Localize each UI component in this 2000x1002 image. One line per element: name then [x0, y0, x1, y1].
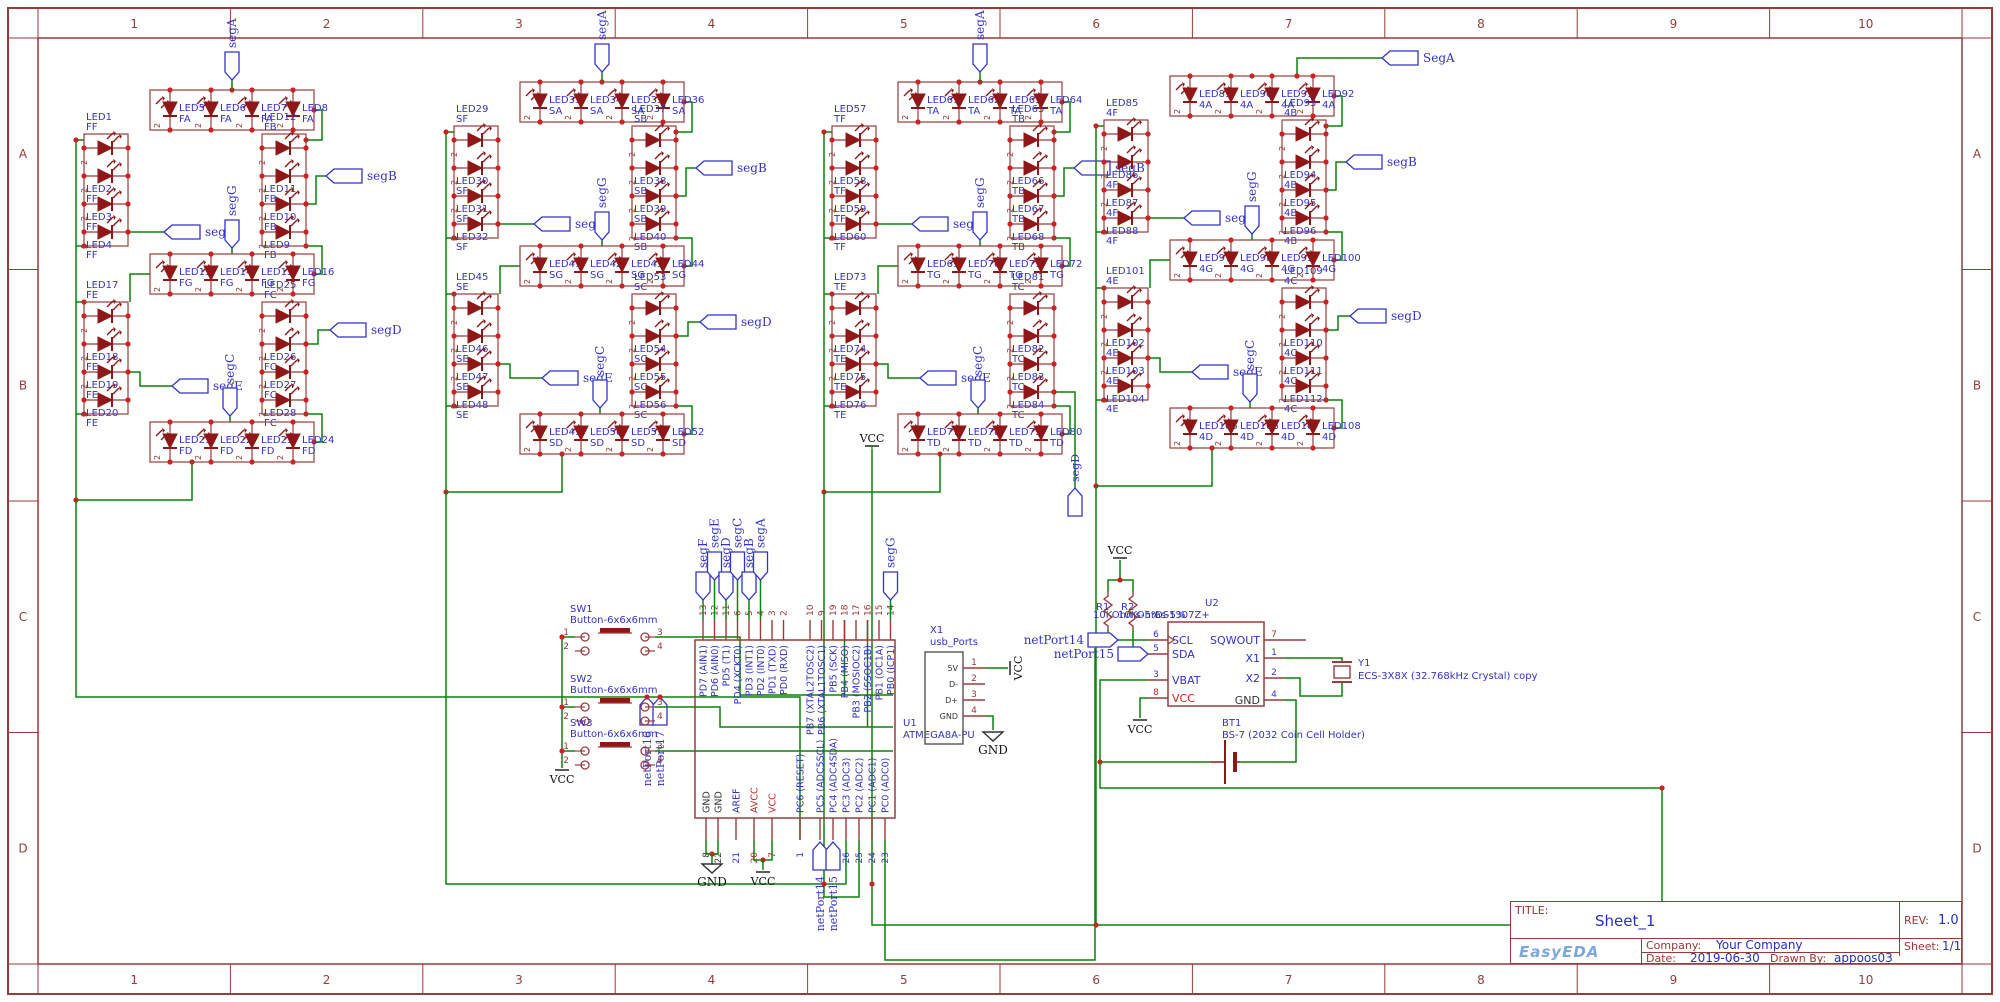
junction-dot: [125, 369, 130, 374]
junction-dot: [1145, 187, 1150, 192]
net-flag-segD[interactable]: segD: [330, 323, 402, 337]
led-tag: 4C: [1284, 348, 1297, 359]
mcu-pin-name: VCC: [768, 793, 779, 813]
wire[interactable]: [878, 266, 898, 294]
net-label[interactable]: segD: [1069, 454, 1082, 482]
button-pin-number: 4: [657, 756, 663, 766]
segment-D-group[interactable]: 2LED21FD2LED22FD2LED23FD2LED24FD: [150, 419, 334, 464]
led-tag: TA: [1049, 106, 1062, 117]
button-ref: SW2: [570, 674, 593, 685]
wire[interactable]: [1284, 678, 1342, 696]
junction-dot: [1323, 327, 1328, 332]
junction-dot: [997, 451, 1002, 456]
led-LED81[interactable]: 2LED81TC: [1006, 272, 1057, 325]
net-label[interactable]: segC: [1243, 340, 1257, 370]
junction-dot: [673, 137, 678, 142]
segment-G-group[interactable]: 2LED13FG2LED14FG2LED15FG2LED16FG: [150, 251, 334, 296]
junction-dot: [249, 251, 254, 256]
led-tag: FF: [86, 122, 98, 133]
wire[interactable]: [1100, 680, 1148, 762]
net-label[interactable]: segC: [223, 354, 237, 384]
segment-E-group[interactable]: 2LED73TE2LED74TE2LED75TE2LED76TE: [828, 272, 879, 421]
net-flag-segC[interactable]: segC: [971, 346, 985, 408]
junction-dot: [1051, 305, 1056, 310]
led-LED93[interactable]: 2LED934B: [1278, 98, 1329, 151]
segment-C-group[interactable]: 2LED53SC2LED54SC2LED55SC2LED56SC: [628, 272, 679, 421]
wire[interactable]: [876, 364, 920, 378]
junction-dot: [1228, 113, 1233, 118]
led-tag: 4B: [1284, 236, 1297, 247]
junction-dot: [873, 305, 878, 310]
net-label[interactable]: segD: [371, 323, 402, 337]
net-label[interactable]: netPort14: [1024, 633, 1085, 647]
net-label[interactable]: segG: [225, 185, 239, 216]
easyeda-logo: EasyEDA: [1519, 943, 1599, 961]
led-tag: FD: [220, 446, 234, 457]
net-label[interactable]: segA: [225, 18, 239, 48]
net-flag-segC[interactable]: segC: [593, 346, 607, 408]
vcc-power-symbol[interactable]: VCC: [549, 770, 575, 786]
junction-dot: [619, 411, 624, 416]
wire[interactable]: [306, 330, 330, 344]
net-flag-netPort14[interactable]: netPort14: [1024, 633, 1118, 647]
junction-dot: [495, 221, 500, 226]
vcc-label: VCC: [1012, 656, 1025, 682]
wire[interactable]: [498, 364, 542, 378]
junction-dot: [821, 129, 826, 134]
net-label[interactable]: netPort15: [827, 876, 840, 931]
led-pin-number: 2: [628, 152, 637, 157]
sheet-title[interactable]: Sheet_1: [1595, 912, 1655, 930]
led-tag: 4B: [1284, 108, 1297, 119]
junction-dot: [1145, 383, 1150, 388]
button-value: Button-6x6x6mm: [570, 615, 658, 626]
led-tag: TF: [833, 186, 846, 197]
led-LED12[interactable]: 2LED12FB: [258, 112, 309, 165]
led-tag: SA: [590, 106, 604, 117]
junction-dot: [660, 411, 665, 416]
net-flag-netPort15[interactable]: netPort15: [1054, 647, 1148, 661]
frame-column-label: 5: [900, 973, 908, 987]
junction-dot: [537, 451, 542, 456]
segment-G-group[interactable]: 2LED974G2LED984G2LED994G2LED1004G: [1170, 237, 1361, 282]
title-label: TITLE:: [1515, 904, 1548, 917]
net-label[interactable]: segA: [754, 518, 768, 548]
mcu-pin-number: 17: [852, 605, 862, 616]
segment-C-group[interactable]: 2LED81TC2LED82TC2LED83TC2LED84TC: [1006, 272, 1057, 421]
junction-dot: [619, 243, 624, 248]
crystal-y1[interactable]: Y1ECS-3X8X (32.768kHz Crystal) copy: [1284, 658, 1538, 696]
junction-dot: [660, 243, 665, 248]
net-label[interactable]: segG: [973, 177, 987, 208]
wire[interactable]: [676, 322, 700, 336]
led-tag: SD: [590, 438, 604, 449]
led-tag: TB: [1011, 186, 1025, 197]
junction-dot: [829, 221, 834, 226]
junction-dot: [915, 451, 920, 456]
crystal-value: ECS-3X8X (32.768kHz Crystal) copy: [1358, 671, 1538, 682]
segment-F-group[interactable]: 2LED1FF2LED2FF2LED3FF2LED4FF: [80, 112, 131, 261]
led-tag: TF: [833, 242, 846, 253]
button-pin-number: 4: [657, 712, 663, 722]
net-flag-segG[interactable]: segG: [884, 537, 898, 600]
net-flag-netPort14[interactable]: netPort14: [813, 842, 827, 931]
led-LED109[interactable]: 2LED1094C: [1278, 266, 1329, 319]
segment-A-group[interactable]: 2LED5FA2LED6FA2LED7FA2LED8FA: [150, 87, 328, 132]
led-LED57[interactable]: 2LED57TF: [828, 104, 879, 157]
segment-C-group[interactable]: 2LED25FC2LED26FC2LED27FC2LED28FC: [258, 280, 309, 429]
led-tag: 4B: [1284, 208, 1297, 219]
wire[interactable]: [1148, 358, 1192, 372]
net-flag-segF[interactable]: segF: [534, 217, 604, 231]
wire[interactable]: [76, 500, 800, 840]
led-tag: FE: [86, 390, 98, 401]
wire[interactable]: [1150, 260, 1170, 288]
led-ref: LED8: [302, 103, 328, 114]
wire[interactable]: [1326, 162, 1346, 190]
led-pin-number: 2: [1255, 441, 1264, 446]
vcc-power-symbol[interactable]: VCC: [1010, 656, 1025, 682]
frame-column-label: 10: [1858, 17, 1873, 31]
led-LED85[interactable]: 2LED854F: [1100, 98, 1151, 151]
junction-dot: [259, 341, 264, 346]
led-pin-number: 2: [1255, 273, 1264, 278]
led-pin-number: 2: [235, 455, 244, 460]
rtc-pin-name: SCL: [1172, 634, 1194, 647]
wire[interactable]: [1140, 698, 1148, 718]
led-tag: TB: [1011, 214, 1025, 225]
led-pin-number: 2: [828, 152, 837, 157]
led-tag: SB: [634, 242, 647, 253]
junction-dot: [629, 137, 634, 142]
junction-dot: [1294, 73, 1299, 78]
rtc-u2[interactable]: U210KOhms-5%10KOhms-5%DS1307Z+6SCL5SDA3V…: [1024, 544, 1665, 791]
vcc-power-symbol[interactable]: VCC: [750, 872, 776, 888]
date-value[interactable]: 2019-06-30: [1690, 951, 1760, 965]
mcu-pin-number: 9: [818, 610, 828, 616]
junction-dot: [125, 201, 130, 206]
junction-dot: [1051, 137, 1056, 142]
sheet-value[interactable]: 1/1: [1942, 939, 1961, 953]
net-flag-segG[interactable]: segG: [225, 185, 239, 248]
junction-dot: [660, 451, 665, 456]
net-label[interactable]: segA: [973, 10, 987, 40]
junction-dot: [208, 419, 213, 424]
seven-seg-digit-1[interactable]: 2LED5FA2LED6FA2LED7FA2LED8FA2LED1FF2LED2…: [73, 18, 401, 503]
gnd-power-symbol[interactable]: GND: [978, 732, 1008, 757]
wire[interactable]: [306, 176, 326, 204]
crystal-ref: Y1: [1357, 658, 1370, 669]
junction-dot: [249, 87, 254, 92]
company-value[interactable]: Your Company: [1716, 938, 1803, 952]
net-flag-segG[interactable]: segG: [595, 177, 609, 240]
led-pin-number: 2: [1296, 441, 1305, 446]
led-LED45[interactable]: 2LED45SE: [450, 272, 501, 325]
junction-dot: [451, 221, 456, 226]
junction-dot: [997, 283, 1002, 288]
net-label[interactable]: segD: [1391, 309, 1422, 323]
segment-B-group[interactable]: 2LED934B2LED944B2LED954B2LED964B: [1278, 98, 1329, 247]
led-pin-number: 2: [153, 123, 162, 128]
junction-dot: [81, 341, 86, 346]
segment-B-group[interactable]: 2LED65TB2LED66TB2LED67TB2LED68TB: [1006, 104, 1057, 253]
button-pin-number: 2: [563, 756, 569, 766]
junction-dot: [956, 119, 961, 124]
net-label[interactable]: segG: [884, 537, 898, 568]
junction-dot: [1310, 73, 1315, 78]
led-tag: TA: [967, 106, 980, 117]
junction-dot: [1101, 131, 1106, 136]
net-label[interactable]: segG: [595, 177, 609, 208]
junction-dot: [956, 79, 961, 84]
wire[interactable]: [1054, 168, 1074, 196]
rev-value[interactable]: 1.0: [1938, 913, 1959, 928]
mcu-pin-number: 21: [732, 852, 742, 863]
junction-dot: [1228, 237, 1233, 242]
junction-dot: [290, 419, 295, 424]
net-flag-SegA[interactable]: SegA: [1382, 51, 1455, 65]
button-value: Button-6x6x6mm: [570, 729, 658, 740]
led-pin-number: 2: [1278, 146, 1287, 151]
frame-column-label: 8: [1477, 17, 1485, 31]
led-pin-number: 2: [564, 279, 573, 284]
wire[interactable]: [500, 266, 520, 294]
led-tag: SB: [634, 186, 647, 197]
net-label[interactable]: SegA: [1423, 51, 1455, 65]
led-LED53[interactable]: 2LED53SC: [628, 272, 679, 325]
segment-D-group[interactable]: 2LED49SD2LED50SD2LED51SD2LED52SD: [520, 411, 704, 456]
net-label[interactable]: segB: [1387, 155, 1417, 169]
segment-A-group[interactable]: 2LED894A2LED904A2LED914A2LED924A: [1170, 73, 1354, 118]
segment-F-group[interactable]: 2LED29SF2LED30SF2LED31SF2LED32SF: [450, 104, 501, 253]
led-tag: SD: [672, 438, 686, 449]
net-flag-segF[interactable]: segF: [1184, 211, 1254, 225]
sheet-label: Sheet:: [1904, 940, 1940, 953]
junction-dot: [1310, 445, 1315, 450]
junction-dot: [629, 389, 634, 394]
junction-dot: [1659, 785, 1664, 790]
led-tag: 4A: [1240, 100, 1253, 111]
rtc-pin-name: SDA: [1172, 648, 1195, 661]
junction-dot: [578, 411, 583, 416]
wire[interactable]: [1100, 762, 1662, 788]
segment-F-group[interactable]: 2LED57TF2LED58TF2LED59TF2LED60TF: [828, 104, 879, 253]
net-label[interactable]: segD: [741, 315, 772, 329]
mcu-pin-number: 18: [841, 604, 851, 616]
junction-dot: [451, 305, 456, 310]
battery-bt1[interactable]: BT1BS-7 (2032 Coin Cell Holder): [1210, 718, 1365, 784]
net-flag-segD[interactable]: segD: [700, 315, 772, 329]
frame-column-label: 2: [323, 17, 331, 31]
net-flag-segF[interactable]: segF: [912, 217, 982, 231]
junction-dot: [1101, 383, 1106, 388]
gnd-label: GND: [697, 875, 727, 889]
junction-dot: [956, 243, 961, 248]
segment-C-group[interactable]: 2LED1094C2LED1104C2LED1114C2LED1124C: [1278, 266, 1329, 415]
segment-E-group[interactable]: 2LED1014E2LED1024E2LED1034E2LED1044E: [1100, 266, 1151, 415]
wire[interactable]: [1297, 58, 1382, 76]
led-tag: SF: [456, 186, 468, 197]
seven-seg-digit-4[interactable]: 2LED894A2LED904A2LED914A2LED924A2LED854F…: [1093, 51, 1455, 489]
net-flag-segD[interactable]: segD: [1350, 309, 1422, 323]
junction-dot: [829, 361, 834, 366]
net-label[interactable]: segG: [1245, 171, 1259, 202]
junction-dot: [259, 145, 264, 150]
led-tag: SD: [631, 438, 645, 449]
wire[interactable]: [676, 168, 696, 196]
mcu-u1[interactable]: U1ATMEGA8A-PU13PD7 (AIN1)12PD6 (AIN0)11P…: [695, 518, 975, 931]
net-flag-segA[interactable]: segA: [973, 10, 987, 72]
led-pin-number: 2: [828, 320, 837, 325]
mcu-pin-name: PC6 (RESET): [796, 754, 807, 813]
led-LED25[interactable]: 2LED25FC: [258, 280, 309, 333]
junction-dot: [1051, 361, 1056, 366]
wire[interactable]: [985, 716, 993, 730]
junction-dot: [578, 283, 583, 288]
rtc-pin-name: X2: [1245, 672, 1260, 685]
led-tag: SF: [456, 214, 468, 225]
net-label[interactable]: segB: [737, 161, 767, 175]
net-flag-segA[interactable]: segA: [225, 18, 239, 80]
mcu-pin-name: PB3 (MOSIOC2): [852, 645, 863, 718]
frame-row-label: A: [1973, 147, 1982, 161]
led-pin-number: 2: [1173, 109, 1182, 114]
schematic-sheet: 1122334455667788991010AABBCCDD2LED5FA2LE…: [0, 0, 2000, 1002]
net-label[interactable]: segC: [971, 346, 985, 376]
led-tag: TC: [1011, 354, 1025, 365]
segment-A-group[interactable]: 2LED61TA2LED62TA2LED63TA2LED64TA: [898, 79, 1082, 124]
led-pin-number: 2: [1006, 152, 1015, 157]
net-label[interactable]: netPort14: [814, 876, 827, 931]
junction-dot: [125, 173, 130, 178]
led-tag: FC: [264, 418, 277, 429]
net-flag-segC[interactable]: segC: [223, 354, 237, 416]
led-pin-number: 2: [942, 115, 951, 120]
net-flag-segF[interactable]: segF: [164, 225, 234, 239]
vcc-power-symbol[interactable]: VCC: [859, 432, 885, 446]
net-flag-netPort15[interactable]: netPort15: [826, 842, 840, 931]
junction-dot: [1038, 451, 1043, 456]
led-tag: SE: [456, 410, 469, 421]
led-LED29[interactable]: 2LED29SF: [450, 104, 501, 157]
wire[interactable]: [872, 450, 1662, 925]
junction-dot: [673, 361, 678, 366]
mcu-pin-number: 7: [768, 852, 778, 858]
junction-dot: [915, 79, 920, 84]
wire[interactable]: [130, 274, 150, 302]
segment-A-group[interactable]: 2LED33SA2LED34SA2LED35SA2LED36SA: [520, 79, 704, 124]
segment-G-group[interactable]: 2LED69TG2LED70TG2LED71TG2LED72TG: [898, 243, 1082, 288]
junction-dot: [167, 87, 172, 92]
led-LED101[interactable]: 2LED1014E: [1100, 266, 1151, 319]
seven-seg-digit-2[interactable]: 2LED33SA2LED34SA2LED35SA2LED36SA2LED29SF…: [443, 10, 771, 495]
led-pin-number: 2: [646, 115, 655, 120]
junction-dot: [1323, 215, 1328, 220]
vcc-power-symbol[interactable]: VCC: [1107, 544, 1133, 558]
led-LED37[interactable]: 2LED37SB: [628, 104, 679, 157]
rtc-pin-number: 6: [1153, 630, 1159, 640]
frame-column-label: 4: [708, 17, 716, 31]
mcu-pin-number: 19: [829, 604, 839, 616]
segment-E-group[interactable]: 2LED45SE2LED46SE2LED47SE2LED48SE: [450, 272, 501, 421]
net-label[interactable]: segA: [595, 10, 609, 40]
mcu-pin-name: PD7 (AIN1): [699, 645, 710, 697]
wire[interactable]: [885, 648, 1095, 960]
led-tag: FB: [264, 222, 277, 233]
junction-dot: [1093, 123, 1098, 128]
wire[interactable]: [128, 372, 172, 386]
frame-row-label: D: [1972, 841, 1981, 855]
button-SW1[interactable]: SW1Button-6x6x6mm1234: [559, 604, 663, 655]
net-flag-segB[interactable]: segB: [1346, 155, 1417, 169]
led-pin-number: 2: [258, 160, 267, 165]
rtc-pin-number: 2: [1271, 668, 1277, 678]
junction-dot: [1279, 187, 1284, 192]
led-tag: SF: [456, 114, 468, 125]
wire[interactable]: [1326, 316, 1350, 330]
junction-dot: [1101, 355, 1106, 360]
drawn-by-value[interactable]: appoos03: [1834, 951, 1893, 965]
schematic-canvas[interactable]: 1122334455667788991010AABBCCDD2LED5FA2LE…: [0, 0, 2000, 1002]
led-tag: FG: [179, 278, 193, 289]
frame-column-label: 1: [130, 17, 138, 31]
junction-dot: [537, 119, 542, 124]
junction-dot: [208, 251, 213, 256]
junction-dot: [1269, 445, 1274, 450]
net-flag-segA[interactable]: segA: [595, 10, 609, 72]
led-tag: 4D: [1199, 432, 1213, 443]
led-LED65[interactable]: 2LED65TB: [1006, 104, 1057, 157]
led-tag: TD: [926, 438, 941, 449]
led-pin-number: 2: [1214, 273, 1223, 278]
junction-dot: [249, 459, 254, 464]
net-flag-segG[interactable]: segG: [1245, 171, 1259, 234]
junction-dot: [125, 145, 130, 150]
net-flag-segG[interactable]: segG: [973, 177, 987, 240]
junction-dot: [303, 173, 308, 178]
segment-G-group[interactable]: 2LED41SG2LED42SG2LED43SG2LED44SG: [520, 243, 704, 288]
button-pin-number: 3: [657, 628, 663, 638]
net-flag-segC[interactable]: segC: [1243, 340, 1257, 402]
junction-dot: [1310, 405, 1315, 410]
net-label[interactable]: segB: [367, 169, 397, 183]
segment-D-group[interactable]: 2LED1054D2LED1064D2LED1074D2LED1084D: [1170, 405, 1361, 450]
segment-D-group[interactable]: 2LED77TD2LED78TD2LED79TD2LED80TD: [898, 411, 1082, 456]
led-LED73[interactable]: 2LED73TE: [828, 272, 879, 325]
gnd-power-symbol[interactable]: GND: [697, 864, 727, 889]
led-pin-number: 2: [153, 287, 162, 292]
led-pin-number: 2: [80, 328, 89, 333]
net-label[interactable]: netPort15: [1054, 647, 1114, 661]
led-LED17[interactable]: 2LED17FE: [80, 280, 131, 333]
battery-value: BS-7 (2032 Coin Cell Holder): [1222, 730, 1365, 741]
net-label[interactable]: segC: [593, 346, 607, 376]
vcc-power-symbol[interactable]: VCC: [1127, 720, 1153, 736]
led-pin-number: 2: [646, 447, 655, 452]
junction-dot: [495, 165, 500, 170]
led-tag: SG: [549, 270, 563, 281]
led-LED1[interactable]: 2LED1FF: [80, 112, 131, 165]
net-flag-segB[interactable]: segB: [326, 169, 397, 183]
junction-dot: [1101, 327, 1106, 332]
segment-E-group[interactable]: 2LED17FE2LED18FE2LED19FE2LED20FE: [80, 280, 131, 429]
usb-pin-name: D-: [949, 680, 958, 689]
mcu-pin-number: 25: [855, 852, 865, 863]
usb-pin-number: 4: [971, 706, 977, 716]
segment-B-group[interactable]: 2LED37SB2LED38SB2LED39SB2LED40SB: [628, 104, 679, 253]
segment-B-group[interactable]: 2LED12FB2LED11FB2LED10FB2LED9FB: [258, 112, 309, 261]
net-flag-segB[interactable]: segB: [696, 161, 767, 175]
